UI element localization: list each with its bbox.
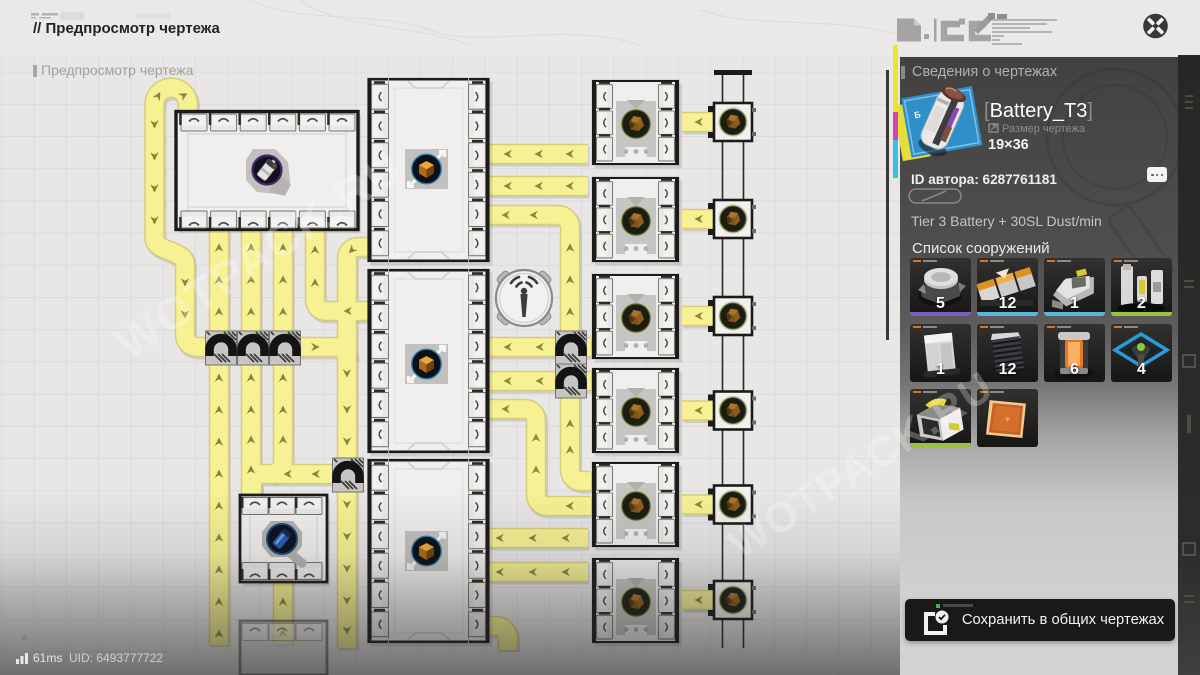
svg-text:// Предпросмотр чертежа: // Предпросмотр чертежа — [33, 20, 221, 37]
